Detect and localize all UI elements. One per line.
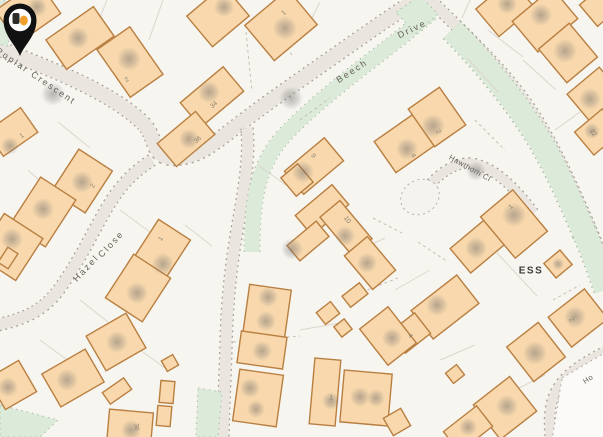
tree [71, 171, 93, 193]
tree [198, 81, 220, 103]
tree [256, 311, 276, 331]
tree [553, 39, 577, 63]
tree [67, 27, 89, 49]
building [580, 0, 603, 26]
tree [56, 369, 78, 391]
building [316, 302, 339, 325]
tree [579, 88, 601, 110]
tree [117, 47, 141, 71]
building [102, 378, 131, 404]
tree [179, 129, 199, 149]
property-location-pin[interactable] [0, 0, 40, 60]
tree [465, 237, 487, 259]
tree [252, 341, 272, 361]
tree [1, 137, 19, 155]
tree [126, 282, 148, 304]
pin-photo-orange-shape [20, 16, 28, 26]
street-tree [466, 161, 486, 181]
street-tree [281, 238, 303, 260]
building [342, 283, 368, 308]
tree [584, 123, 600, 139]
tree [322, 392, 340, 410]
tree [258, 287, 278, 307]
tree [152, 253, 174, 275]
street-tree [279, 86, 303, 110]
tree [367, 389, 385, 407]
tree [459, 418, 477, 436]
building [161, 355, 178, 372]
street-tree [41, 82, 65, 106]
tree [502, 203, 526, 227]
tree [523, 341, 547, 365]
building [159, 380, 175, 403]
tree [292, 161, 314, 183]
building [334, 319, 352, 337]
tree [1, 228, 23, 250]
building [445, 365, 464, 384]
tree [335, 226, 355, 246]
tree [496, 395, 518, 417]
map-canvas[interactable]: Poplar CrescentBeechDriveHazelCloseHawth… [0, 0, 603, 437]
tree [106, 331, 128, 353]
tree [247, 400, 265, 418]
tree [273, 16, 297, 40]
building [309, 358, 341, 426]
tree [240, 378, 260, 398]
map-base-layer [0, 0, 603, 437]
tree [382, 328, 402, 348]
tree [350, 387, 370, 407]
tree [421, 114, 445, 138]
tree [564, 306, 586, 328]
building [233, 369, 284, 427]
tree [426, 294, 448, 316]
building [156, 405, 172, 426]
pin-photo-dark-shape [13, 13, 20, 24]
tree [396, 138, 418, 160]
tree [32, 198, 54, 220]
tree [530, 4, 552, 26]
tree [357, 253, 377, 273]
tree [552, 258, 564, 270]
